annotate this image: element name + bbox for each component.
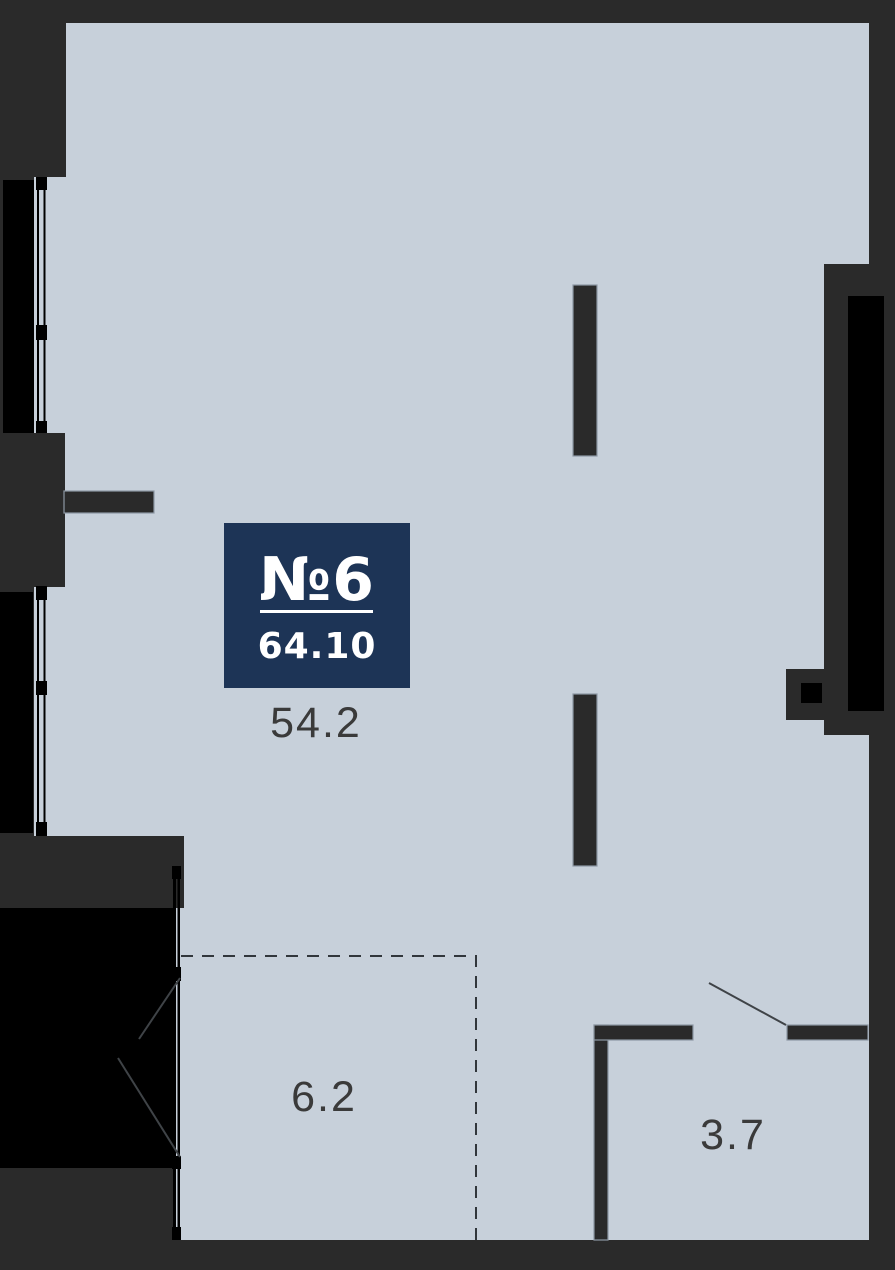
window-1-glass — [3, 180, 34, 433]
wall-bottom-left-band — [0, 836, 184, 908]
kitchen-zone-area-label: 6.2 — [291, 1073, 357, 1121]
wall-left-pier — [0, 433, 65, 587]
wall-interior-stub — [64, 491, 154, 513]
balcony-window-node — [172, 866, 181, 879]
window-2-frame-node — [36, 681, 47, 695]
window-1-frame-node — [36, 421, 47, 434]
unit-number-label: №6 — [259, 545, 375, 615]
duct-shaft — [848, 296, 884, 711]
window-1-frame-line — [44, 177, 46, 434]
living-area-label: 54.2 — [270, 699, 362, 747]
balcony-window-line — [178, 866, 181, 1240]
balcony-window-node — [172, 1227, 181, 1240]
bathroom-area-label: 3.7 — [700, 1111, 766, 1159]
balcony-window-node — [172, 1156, 181, 1169]
window-2-frame-node — [36, 822, 47, 836]
wall-partition-upper — [573, 285, 597, 456]
window-2-frame-node — [36, 586, 47, 600]
unit-badge-divider — [260, 610, 373, 613]
bathroom-wall-top-left — [594, 1025, 693, 1040]
window-2-frame-line — [37, 586, 39, 836]
wall-bottom-left-block — [0, 1168, 173, 1270]
bathroom-wall-top-right — [787, 1025, 868, 1040]
window-1-frame-node — [36, 325, 47, 340]
wall-partition-lower — [573, 694, 597, 866]
unit-total-area-label: 64.10 — [258, 626, 377, 667]
balcony-door-opening — [0, 908, 173, 1168]
window-1-frame-node — [36, 177, 47, 190]
window-2-glass — [0, 592, 33, 833]
unit-badge[interactable]: №6 64.10 — [224, 523, 410, 688]
bathroom-wall-left — [594, 1025, 608, 1240]
floor-plan: №6 64.10 54.2 6.2 3.7 — [0, 0, 895, 1270]
floor-plan-canvas: №6 64.10 54.2 6.2 3.7 — [0, 0, 895, 1270]
window-2-frame-line — [44, 586, 46, 836]
balcony-window-line — [173, 866, 176, 1240]
window-1-frame-line — [37, 177, 39, 434]
duct-shaft-small — [801, 683, 822, 703]
wall-top-left-corner — [0, 0, 66, 177]
